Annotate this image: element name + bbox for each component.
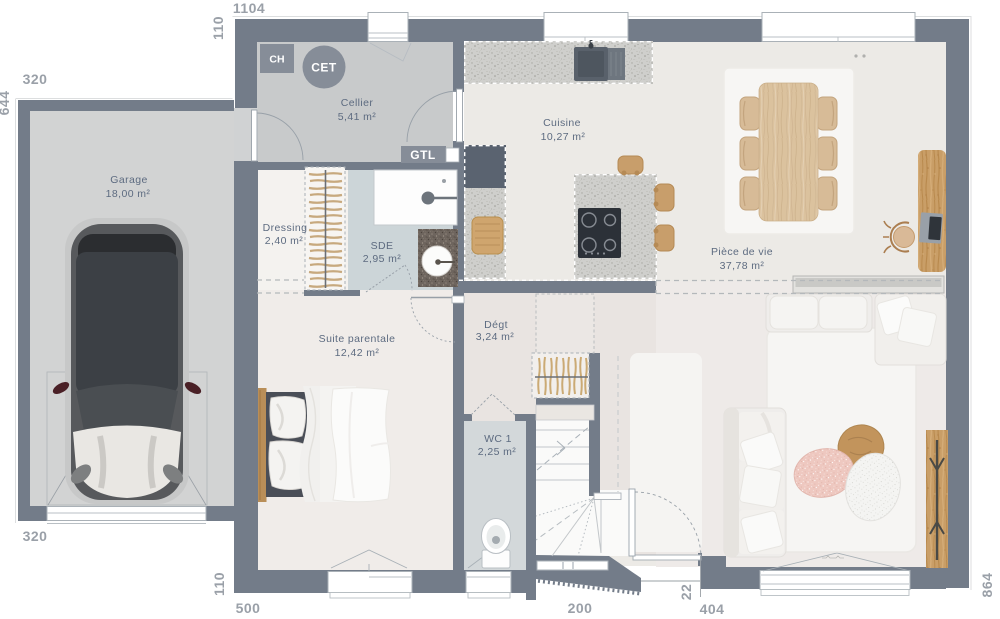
svg-text:2,25 m²: 2,25 m² bbox=[478, 446, 516, 458]
svg-text:110: 110 bbox=[210, 16, 226, 40]
svg-text:10,27 m²: 10,27 m² bbox=[541, 131, 586, 143]
svg-text:WC 1: WC 1 bbox=[484, 433, 512, 445]
svg-text:500: 500 bbox=[236, 600, 261, 616]
svg-text:2,95 m²: 2,95 m² bbox=[363, 253, 401, 265]
svg-text:1104: 1104 bbox=[233, 0, 265, 16]
svg-text:Garage: Garage bbox=[110, 174, 147, 186]
svg-text:Dégt: Dégt bbox=[484, 319, 508, 331]
svg-text:Cellier: Cellier bbox=[341, 97, 374, 109]
svg-text:CH: CH bbox=[269, 54, 284, 66]
svg-text:Cuisine: Cuisine bbox=[543, 117, 581, 129]
svg-text:12,42 m²: 12,42 m² bbox=[335, 347, 380, 359]
svg-text:200: 200 bbox=[568, 600, 593, 616]
svg-text:18,00 m²: 18,00 m² bbox=[106, 188, 151, 200]
svg-text:SDE: SDE bbox=[371, 240, 394, 252]
svg-text:644: 644 bbox=[0, 91, 12, 116]
svg-text:2,40 m²: 2,40 m² bbox=[265, 235, 303, 247]
svg-text:320: 320 bbox=[23, 71, 48, 87]
svg-text:110: 110 bbox=[211, 572, 227, 596]
svg-text:Dressing: Dressing bbox=[263, 222, 308, 234]
svg-text:Pièce de vie: Pièce de vie bbox=[711, 246, 773, 258]
svg-text:GTL: GTL bbox=[410, 148, 436, 162]
svg-text:5,41 m²: 5,41 m² bbox=[338, 111, 376, 123]
svg-text:404: 404 bbox=[700, 601, 725, 617]
svg-text:864: 864 bbox=[979, 573, 995, 598]
svg-text:Suite parentale: Suite parentale bbox=[319, 333, 396, 345]
svg-text:37,78 m²: 37,78 m² bbox=[720, 260, 765, 272]
svg-text:CET: CET bbox=[311, 61, 337, 75]
svg-text:320: 320 bbox=[23, 528, 48, 544]
svg-text:3,24 m²: 3,24 m² bbox=[476, 331, 514, 343]
svg-text:22: 22 bbox=[678, 584, 694, 601]
